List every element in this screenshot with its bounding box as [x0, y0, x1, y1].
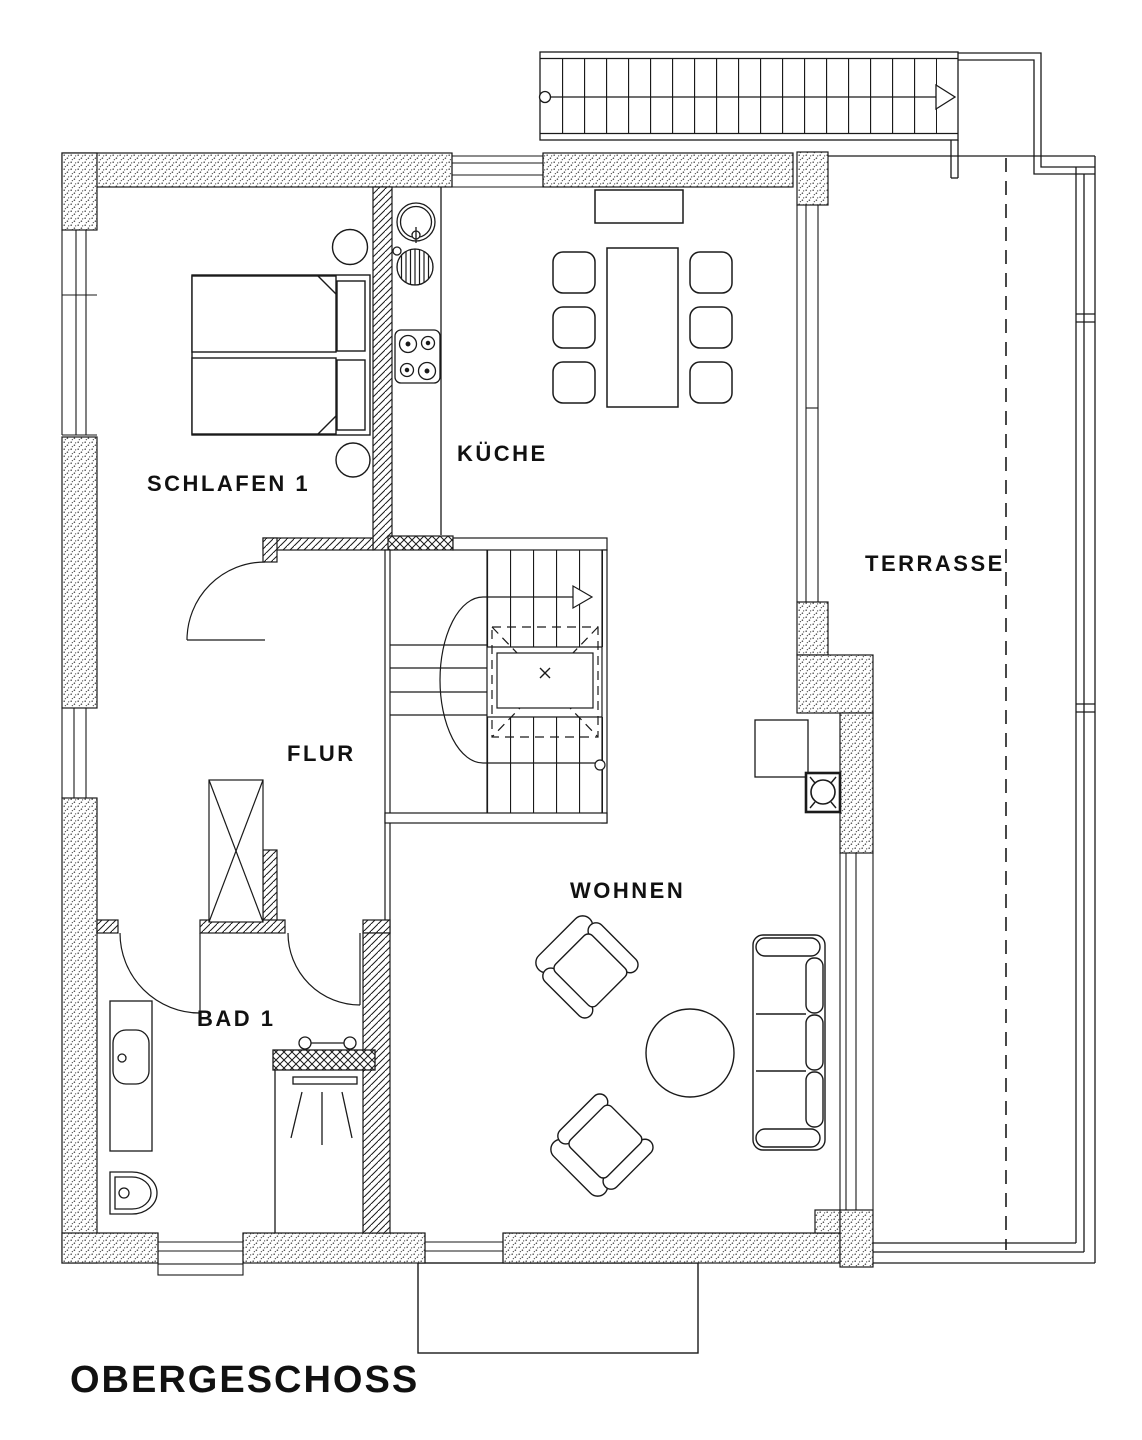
room-label-wohnen: WOHNEN — [570, 878, 685, 903]
window-south-living — [425, 1233, 503, 1263]
kitchen-sink — [393, 203, 435, 255]
wall-east-segment-1 — [797, 602, 828, 655]
wall-top-right — [543, 153, 793, 187]
floorplan-drawing: SCHLAFEN 1 KÜCHE TERRASSE FLUR WOHNEN BA… — [0, 0, 1142, 1440]
stair-enclosure-north-edge — [453, 538, 607, 550]
dining-chair — [690, 307, 732, 348]
dining-chair — [553, 252, 595, 293]
wall-bedroom-south-cap — [263, 538, 277, 562]
hearth-bench — [755, 720, 808, 777]
stair-enclosure-west-wall — [385, 550, 390, 933]
wall-east-pier — [840, 713, 873, 853]
armchair — [544, 1091, 656, 1203]
dining-table — [607, 248, 678, 407]
wall-south-segment-2 — [243, 1233, 425, 1263]
floorplan-page: SCHLAFEN 1 KÜCHE TERRASSE FLUR WOHNEN BA… — [0, 0, 1142, 1440]
armchair — [529, 909, 641, 1021]
kitchen-fixtures — [393, 187, 441, 535]
bedroom-furniture — [192, 230, 370, 478]
wall-bath-north-3 — [363, 920, 390, 933]
toilet — [110, 1172, 157, 1214]
window-east-living — [840, 853, 873, 1210]
basin-drain — [118, 1054, 126, 1062]
exterior-walls — [62, 152, 873, 1267]
window-east-kitchen — [797, 205, 828, 602]
stair-walkline-start — [540, 92, 551, 103]
dining-chair — [553, 362, 595, 403]
wall-top-left — [62, 153, 452, 187]
sideboard — [595, 190, 683, 223]
living-room-furniture — [529, 909, 825, 1203]
kitchen-drainer — [397, 249, 433, 285]
wall-east-l-block — [797, 655, 873, 713]
windows — [62, 153, 873, 1263]
bedside-stool — [336, 443, 370, 477]
shower — [273, 1037, 375, 1233]
wall-corner-northeast — [797, 152, 828, 205]
dining-chair — [690, 252, 732, 293]
coffee-table — [646, 1009, 734, 1097]
wall-south-pier — [815, 1210, 840, 1233]
wall-shaft-side — [263, 850, 277, 922]
room-label-terrasse: TERRASSE — [865, 551, 1005, 576]
wall-south-segment-1 — [62, 1233, 158, 1263]
window-west-hall — [62, 708, 97, 798]
internal-stairwell — [390, 550, 605, 813]
wall-bath-north-1 — [97, 920, 118, 933]
wall-west-segment-2 — [62, 437, 97, 708]
bathroom-fixtures — [110, 1001, 375, 1233]
stair-lower-flight — [487, 717, 603, 813]
stair-enclosure-south-edge — [385, 813, 607, 823]
fireplace — [755, 720, 840, 812]
dining-chair — [553, 307, 595, 348]
installation-shaft — [209, 780, 263, 922]
door-bedroom — [187, 562, 265, 640]
room-label-kueche: KÜCHE — [457, 441, 548, 466]
dining-set — [553, 190, 732, 407]
window-north-kitchen — [452, 153, 543, 187]
door-bath-right — [288, 933, 360, 1005]
floor-title: OBERGESCHOSS — [70, 1359, 419, 1401]
external-staircase — [540, 52, 959, 140]
wall-stair-north — [388, 536, 453, 550]
sofa — [753, 935, 825, 1150]
room-label-flur: FLUR — [287, 741, 356, 766]
wall-south-segment-3 — [503, 1233, 840, 1263]
wall-bedroom-kitchen — [373, 187, 392, 550]
wall-west-segment-3 — [62, 798, 97, 1263]
dining-chair — [690, 362, 732, 403]
window-sill-exterior — [158, 1264, 243, 1275]
window-south-bath — [158, 1233, 243, 1263]
wall-bedroom-south — [263, 538, 373, 550]
wall-bath-east — [363, 933, 390, 1233]
window-west-bedroom — [62, 230, 97, 435]
wall-west-segment-1 — [62, 153, 97, 230]
bedside-stool — [333, 230, 368, 265]
double-bed — [192, 275, 370, 435]
kitchen-stove — [395, 330, 440, 383]
room-label-schlafen-1: SCHLAFEN 1 — [147, 471, 310, 496]
room-label-bad-1: BAD 1 — [197, 1006, 276, 1031]
wall-corner-southeast — [840, 1210, 873, 1267]
lower-floor-outline — [418, 1263, 698, 1353]
